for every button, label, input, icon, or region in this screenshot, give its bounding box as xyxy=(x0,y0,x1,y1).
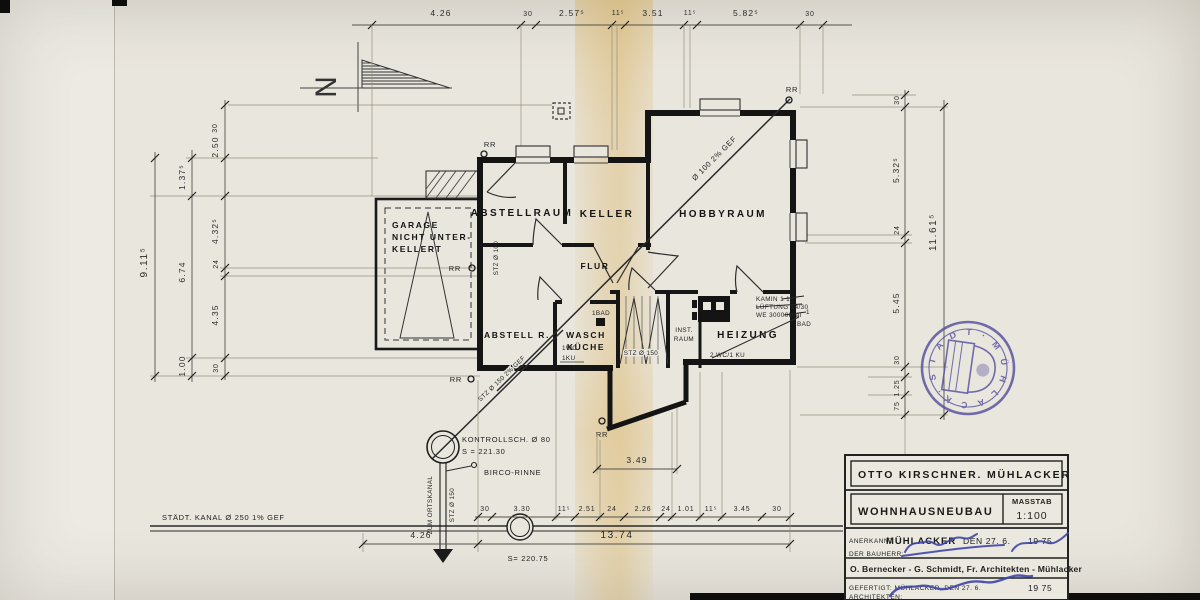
dim-bot-5: 2.26 xyxy=(635,506,652,513)
architekten-label: ARCHITEKTEN: xyxy=(849,594,903,600)
small-annotations: 1BAD 1WC 1KU 2 WC/1 KU KAMIN 1 18⁵ LÜFTU… xyxy=(493,103,811,362)
bauherr-label: DER BAUHERR: xyxy=(849,551,904,558)
stz150-vert-label: STZ Ø 150 xyxy=(449,488,456,522)
label-bad: BAD xyxy=(797,321,811,328)
door-post xyxy=(596,318,605,326)
dim-right-inner-5: 1.25 xyxy=(894,380,901,397)
dim-top-3: 11⁵ xyxy=(612,10,625,17)
dim-bot-4: 24 xyxy=(607,506,616,513)
sewer-infrastructure: STÄDT. KANAL Ø 250 1% GEF KONTROLLSCH. Ø… xyxy=(150,431,843,563)
floorplan-drawing: N 4.26 30 2.57⁵ 11⁵ 3.51 xyxy=(0,0,1200,600)
exterior-steps-hatch xyxy=(426,171,478,198)
dim-right-inner-3: 5.45 xyxy=(891,292,901,313)
door-swings xyxy=(487,162,763,300)
label-2wc1ku: 2 WC/1 KU xyxy=(710,352,745,359)
room-heizung: HEIZUNG xyxy=(717,330,779,341)
stamp-emblem xyxy=(942,340,999,396)
dim-left-inner-3: 24 xyxy=(213,259,220,268)
dim-top-7: 30 xyxy=(805,11,814,18)
dim-right-inner-6: 75 xyxy=(894,401,901,410)
pipe-stz-label: STZ Ø 150 2% GEF xyxy=(477,355,527,404)
north-label: N xyxy=(310,76,343,98)
kontrollschacht-label: KONTROLLSCH. Ø 80 xyxy=(462,435,551,444)
room-flur: FLUR xyxy=(580,261,609,271)
room-hobbyraum: HOBBYRAUM xyxy=(679,209,767,220)
dim-right-outer: 11.61⁵ xyxy=(928,213,939,251)
birco-label: BIRCO-RINNE xyxy=(484,468,541,477)
scanned-floorplan-page: N 4.26 30 2.57⁵ 11⁵ 3.51 xyxy=(0,0,1200,600)
title-block: OTTO KIRSCHNER. MÜHLACKER WOHNHAUSNEUBAU… xyxy=(845,455,1083,600)
chimney-block xyxy=(692,296,730,322)
dim-right-inner-4: 30 xyxy=(894,355,901,364)
dim-bot-10: 30 xyxy=(772,506,781,513)
label-1bad: 1BAD xyxy=(592,310,610,317)
dim-bot-6: 24 xyxy=(661,506,670,513)
rr-label-topright: RR xyxy=(786,85,798,94)
dim-left-outer: 9.11⁵ xyxy=(139,247,150,278)
city-stamp: · S T A D T · M Ü H L A C K E R xyxy=(0,0,1014,414)
titleblock-project: WOHNHAUSNEUBAU xyxy=(858,506,993,518)
dim-top-4: 3.51 xyxy=(642,8,663,18)
building-walls xyxy=(477,99,807,429)
room-labels: ABSTELLRAUM KELLER HOBBYRAUM FLUR ABSTEL… xyxy=(471,208,779,352)
dim-bot-9: 3.45 xyxy=(734,506,751,513)
dim-left-middle-1: 6.74 xyxy=(177,261,187,282)
label-we: WE 30000kcal xyxy=(756,312,801,319)
room-abstellraum: ABSTELLRAUM xyxy=(471,208,574,219)
pipes: Ø 100 2% GEF STZ Ø 150 2% GEF RR RR RR R… xyxy=(432,85,799,459)
rr-label-topleft: RR xyxy=(484,140,496,149)
svg-text:· S T A D T · M Ü H L A C K E: · S T A D T · M Ü H L A C K E R xyxy=(0,0,1010,410)
manhole-level: S= 220.75 xyxy=(508,554,549,563)
zum-ortskanal-label: ZUM ORTSKANAL xyxy=(427,476,434,535)
dim-top-0: 4.26 xyxy=(430,8,451,18)
room-wasch-1: WASCH xyxy=(566,330,606,340)
dim-left-inner-5: 30 xyxy=(213,363,220,372)
kontrollschacht-level: S = 221.30 xyxy=(462,447,506,456)
dim-left-middle-2: 1.00 xyxy=(177,355,187,376)
dim-top-2: 2.57⁵ xyxy=(559,8,585,18)
dim-bot-8: 11⁵ xyxy=(705,506,718,513)
gefertigt-year: 19 75 xyxy=(1028,583,1052,593)
dim-right-inner-1: 5.32⁵ xyxy=(891,157,901,183)
rr-label-bottom: RR xyxy=(596,430,608,439)
dim-right-inner-2: 24 xyxy=(894,225,901,234)
drain-symbol xyxy=(553,103,570,119)
dim-bottom-left: 4.26 xyxy=(410,530,431,540)
dim-exit-width: 3.49 xyxy=(626,455,647,465)
room-inst-1: INST. xyxy=(675,327,692,334)
masstab-value: 1:100 xyxy=(1016,510,1047,522)
dim-left-inner-4: 4.35 xyxy=(210,304,220,325)
dim-bottom-total: 13.74 xyxy=(600,530,633,541)
rr-label-left: RR xyxy=(450,375,462,384)
garage-label-2: NICHT UNTER- xyxy=(392,232,472,242)
titleblock-owner: OTTO KIRSCHNER. MÜHLACKER xyxy=(858,468,1071,481)
room-inst-2: RAUM xyxy=(674,336,694,343)
top-dimension-chain: 4.26 30 2.57⁵ 11⁵ 3.51 11⁵ 5.82⁵ 30 xyxy=(352,8,852,196)
dim-left-inner-0: 30 xyxy=(212,123,219,132)
garage-label-3: KELLERT xyxy=(392,244,442,254)
label-stz100: STZ Ø 100 xyxy=(493,241,500,275)
room-abstell-r: ABSTELL R. xyxy=(484,330,550,340)
stamp-text: · S T A D T · M Ü H L A C K E R xyxy=(0,0,1010,410)
dim-top-6: 5.82⁵ xyxy=(733,8,759,18)
dim-bot-1: 3.30 xyxy=(514,506,531,513)
room-keller: KELLER xyxy=(580,209,634,220)
label-1wc: 1WC xyxy=(562,345,577,352)
dim-bot-2: 11⁵ xyxy=(558,506,571,513)
garage: GARAGE NICHT UNTER- KELLERT RR xyxy=(376,171,480,349)
dim-left-inner-2: 4.32⁵ xyxy=(210,218,220,244)
dim-left-inner-1: 2.50 xyxy=(210,136,220,157)
label-bad-num: 1 xyxy=(806,309,810,316)
rr-label-garage: RR xyxy=(449,264,461,273)
dim-top-1: 30 xyxy=(523,11,532,18)
dim-bot-3: 2.51 xyxy=(579,506,596,513)
architects-row: O. Bernecker - G. Schmidt, Fr. Architekt… xyxy=(850,564,1083,574)
dim-bot-7: 1.01 xyxy=(678,506,695,513)
north-arrow: N xyxy=(300,42,452,112)
garage-label-1: GARAGE xyxy=(392,220,439,230)
stairs: STZ Ø 150 xyxy=(620,296,668,364)
dim-top-5: 11⁵ xyxy=(684,10,697,17)
masstab-label: MASSTAB xyxy=(1012,497,1052,506)
bottom-dimension-chains: 3.49 30 3.30 11⁵ 2.51 24 2.26 24 1.01 11… xyxy=(359,370,794,552)
label-kamin: KAMIN 1 18⁵ xyxy=(756,296,797,303)
label-1ku: 1KU xyxy=(562,355,576,362)
dim-right-inner-0: 30 xyxy=(894,95,901,104)
dim-bot-0: 30 xyxy=(480,506,489,513)
stairs-pipe-label: STZ Ø 150 xyxy=(624,350,658,357)
kanal-label: STÄDT. KANAL Ø 250 1% GEF xyxy=(162,513,285,522)
dim-left-middle-0: 1.37⁵ xyxy=(177,164,187,190)
